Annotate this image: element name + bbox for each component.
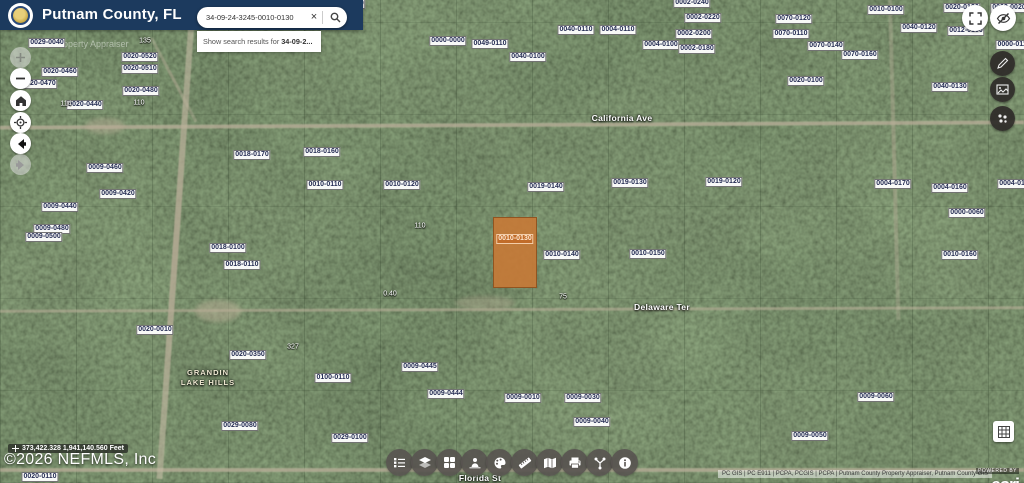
parcel-label[interactable]: 0040-0110 [557, 25, 594, 35]
parcel-label[interactable]: 0020-0520 [121, 52, 158, 62]
photo-icon [996, 83, 1009, 96]
parcel-label[interactable]: 0009-0460 [86, 163, 123, 173]
parcel-label[interactable]: 0010-0140 [543, 250, 580, 260]
esri-logo: POWERED BY esri [976, 459, 1019, 483]
print-button[interactable] [561, 449, 588, 476]
parcel-label[interactable]: 0040-0130 [931, 82, 968, 92]
parcel-label[interactable]: 0029-0100 [331, 433, 368, 443]
dimension-label: 114 [60, 101, 71, 108]
parcel-label[interactable]: 0009-0040 [573, 417, 610, 427]
dimension-label: 0.40 [383, 291, 397, 298]
parcel-label[interactable]: 0070-0160 [841, 50, 878, 60]
layers-icon [418, 456, 432, 470]
parcel-label[interactable]: 0020-0460 [41, 67, 78, 77]
map-labels-layer: 0029-00400020-05200020-05100020-04600020… [0, 0, 1024, 483]
table-grid-icon [998, 426, 1010, 438]
palette-icon [493, 456, 507, 470]
parcel-label[interactable]: 0009-0060 [857, 392, 894, 402]
parcel-label[interactable]: 0009-0030 [564, 393, 601, 403]
dimension-label: 75 [559, 294, 567, 301]
printer-icon [568, 456, 582, 470]
fullscreen-button[interactable] [962, 5, 988, 31]
parcel-label[interactable]: 0000-0110 [995, 40, 1024, 50]
expand-icon [969, 12, 982, 25]
parcel-label[interactable]: 0009-0050 [791, 431, 828, 441]
powered-by-text: POWERED BY [976, 468, 1019, 474]
parcel-label[interactable]: 0020-0440 [66, 100, 103, 110]
parcel-label[interactable]: 0018-0160 [303, 147, 340, 157]
parcel-label[interactable]: 0004-0110 [599, 25, 636, 35]
crosshair-icon [14, 116, 27, 129]
zoom-in-button[interactable] [10, 47, 31, 68]
pencil-icon [996, 57, 1009, 70]
sketch-tool-button[interactable] [990, 51, 1015, 76]
parcel-label[interactable]: 0070-0110 [772, 29, 809, 39]
arrow-right-icon [15, 159, 27, 171]
parcel-label[interactable]: 0020-0480 [122, 86, 159, 96]
eye-slash-icon [996, 12, 1011, 25]
parcel-label[interactable]: 0004-0170 [874, 179, 911, 189]
parcel-label[interactable]: 0004-0100 [642, 40, 679, 50]
parcel-label[interactable]: 0020-0110 [21, 472, 58, 482]
parcel-label[interactable]: 0020-0350 [229, 350, 266, 360]
info-icon [618, 456, 632, 470]
info-button[interactable] [611, 449, 638, 476]
imagery-tool-button[interactable] [990, 77, 1015, 102]
parcel-label[interactable]: 0009-0440 [41, 202, 78, 212]
home-button[interactable] [10, 90, 31, 111]
parcel-label[interactable]: 0002-0240 [673, 0, 710, 8]
legend-icon [393, 456, 406, 469]
arrow-left-icon [15, 138, 27, 150]
basemap-grid-icon [443, 456, 456, 469]
parcel-label[interactable]: 0029-0080 [221, 421, 258, 431]
parcel-label[interactable]: 0020-0010 [136, 325, 173, 335]
parcel-label[interactable]: 0019-0140 [527, 182, 564, 192]
dimension-label: 110 [133, 100, 144, 107]
search-bar[interactable]: × [197, 7, 347, 28]
parcel-label[interactable]: 0070-0140 [807, 41, 844, 51]
parcel-label[interactable]: 0000-0060 [948, 208, 985, 218]
parcel-label[interactable]: 0009-0500 [25, 232, 62, 242]
esri-brand-text: esri [976, 477, 1019, 483]
legend-button[interactable] [386, 449, 413, 476]
parcel-label[interactable]: 0018-0170 [233, 150, 270, 160]
attribution-bar: PC GIS | PC E911 | PCPA, PCGIS | PCPA | … [718, 470, 992, 478]
zoom-out-button[interactable] [10, 68, 31, 89]
near-me-button[interactable] [461, 449, 488, 476]
layers-button[interactable] [411, 449, 438, 476]
back-button[interactable] [10, 133, 31, 154]
app-title: Putnam County, FL [42, 6, 182, 23]
ruler-icon [518, 456, 532, 470]
dimension-label: 110 [414, 223, 425, 230]
parcel-label[interactable]: 0002-0180 [678, 44, 715, 54]
person-icon [468, 456, 482, 470]
parcel-label[interactable]: 0009-0444 [427, 389, 464, 399]
parcel-label[interactable]: 0040-0120 [900, 23, 937, 33]
parcel-label[interactable]: 0010-0100 [867, 5, 904, 15]
parcel-label[interactable]: 0040-0100 [509, 52, 546, 62]
map-icon [543, 456, 557, 470]
add-data-button[interactable] [536, 449, 563, 476]
parcel-label[interactable]: 0009-0010 [504, 393, 541, 403]
home-icon [15, 95, 27, 107]
draw-button[interactable] [486, 449, 513, 476]
county-seal-logo[interactable] [8, 3, 33, 28]
dimension-label: 135 [139, 38, 151, 45]
street-label: Delaware Ter [634, 302, 690, 312]
parcel-label[interactable]: 0019-0120 [705, 177, 742, 187]
parcel-label[interactable]: 0020-0100 [787, 76, 824, 86]
plus-icon [15, 52, 26, 63]
parcel-label[interactable]: 0018-0100 [209, 243, 246, 253]
parcel-label[interactable]: 0100-0110 [314, 373, 351, 383]
parcel-label[interactable]: 0049-0110 [471, 39, 508, 49]
map-viewer: 0010-0130 0029-00400020-05200020-0510002… [0, 0, 1024, 483]
share-icon [593, 456, 607, 470]
basemap-texture-tool-button[interactable] [990, 106, 1015, 131]
street-label: California Ave [592, 113, 653, 123]
search-icon[interactable] [323, 12, 347, 23]
parcel-label[interactable]: 0009-0420 [99, 189, 136, 199]
search-suggestion[interactable]: Show search results for34-09-2... [197, 31, 321, 52]
locate-button[interactable] [10, 112, 31, 133]
parcel-label[interactable]: 0000-0000 [429, 36, 466, 46]
parcel-label[interactable]: 0010-0110 [306, 180, 343, 190]
clear-search-icon[interactable]: × [306, 7, 322, 28]
parcel-label[interactable]: 0010-0160 [941, 250, 978, 260]
parcel-label[interactable]: 0002-0200 [675, 29, 712, 39]
minus-icon [15, 73, 26, 84]
basemap-gallery-button[interactable] [436, 449, 463, 476]
seal-icon [11, 6, 30, 25]
search-input[interactable] [197, 13, 306, 22]
copyright-text: ©2026 NEFMLS, Inc [4, 451, 156, 469]
parcel-label[interactable]: 0009-0445 [401, 362, 438, 372]
parcel-label[interactable]: 0029-0040 [28, 38, 65, 48]
share-button[interactable] [586, 449, 613, 476]
measurement-button[interactable] [511, 449, 538, 476]
parcel-label[interactable]: 0002-0220 [684, 13, 721, 23]
subdivision-label: GRANDIN LAKE HILLS [168, 368, 248, 388]
parcel-label[interactable]: 0010-0120 [383, 180, 420, 190]
parcel-label[interactable]: 0018-0110 [223, 260, 260, 270]
parcel-label[interactable]: 0020-0510 [121, 64, 158, 74]
forward-button[interactable] [10, 154, 31, 175]
parcel-label[interactable]: 0010-0150 [629, 249, 666, 259]
hide-ui-button[interactable] [990, 5, 1016, 31]
dimension-label: 327 [287, 344, 299, 351]
texture-icon [996, 112, 1009, 125]
parcel-label[interactable]: 0004-0160 [931, 183, 968, 193]
attribute-table-button[interactable] [993, 421, 1014, 442]
parcel-label[interactable]: 0070-0120 [775, 14, 812, 24]
parcel-label[interactable]: 0004-0150 [997, 179, 1024, 189]
parcel-label[interactable]: 0019-0130 [611, 178, 648, 188]
